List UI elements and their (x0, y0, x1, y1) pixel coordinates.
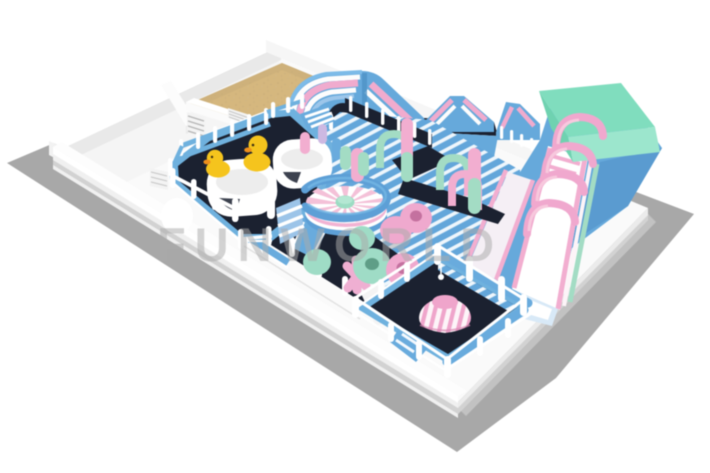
svg-text:FUNWORLD: FUNWORLD (157, 218, 503, 271)
